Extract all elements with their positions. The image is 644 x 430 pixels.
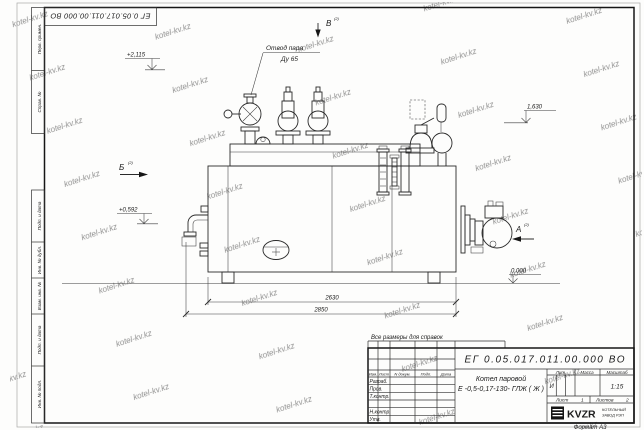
stamp-inv-podl: Инв. № подл. — [37, 380, 42, 409]
org-line1: КОТЕЛЬНЫЙ — [602, 408, 626, 412]
view-label-b: Б — [119, 163, 124, 172]
titleblock-designation: ЕГ 0.05.017.011.00.000 ВО — [465, 355, 625, 366]
masshtab-value: 1:15 — [611, 384, 624, 391]
row-tkontr: Т.контр. — [370, 394, 390, 400]
view-ref-b: (2) — [128, 160, 134, 165]
reference-note: Все размеры для справок — [371, 335, 444, 341]
dim-text-2630: 2630 — [324, 296, 339, 302]
svg-text:+0,592: +0,592 — [119, 208, 138, 214]
stamp-podp-data-2: Подп. и дата — [37, 325, 42, 354]
org-line2: ЗАВОД РЭП — [602, 414, 624, 418]
col-list: Лист — [378, 372, 390, 377]
dim-text-2850: 2850 — [313, 308, 328, 314]
doc-name-line2: Е -0,5-0,17-130- ГЛЖ ( Ж ) — [458, 386, 544, 393]
row-nkontr: Н.контр. — [370, 410, 391, 416]
col-podp: Подп. — [421, 372, 432, 377]
sheets-value: 2 — [625, 397, 629, 403]
steam-note-line2: Ду 65 — [280, 56, 298, 63]
view-label-a: А — [515, 225, 521, 234]
lit-label: Лит. — [555, 370, 567, 375]
svg-text:1,630: 1,630 — [527, 105, 543, 111]
format-label: Формат А3 — [574, 425, 607, 430]
stamp-sprav-no: Справ. № — [37, 92, 42, 113]
row-utv: Утв. — [370, 417, 381, 423]
steam-note-line1: Отвод пара — [266, 44, 304, 52]
stamp-vzam-inv: Взам. инв. № — [37, 282, 42, 310]
col-ndokum: N докум. — [394, 372, 410, 377]
svg-text:0,000: 0,000 — [511, 269, 527, 275]
stamp-inv-dubl: Инв. № дубл. — [37, 246, 42, 274]
view-ref-v: (2) — [334, 16, 340, 21]
row-prov: Пров. — [370, 387, 383, 393]
drawing-sheet: kotel-kv.kz ЕГ 0.05.017.011.00.000 ВО Пе… — [0, 0, 644, 430]
svg-text:+2,115: +2,115 — [127, 53, 146, 59]
top-designation-text: ЕГ 0.05.017.011.00.000 ВО — [50, 12, 150, 21]
sheet-label: Лист — [555, 397, 568, 403]
massa-label: Масса — [580, 370, 594, 375]
col-izm: Изм. — [369, 372, 378, 377]
view-ref-a: (2) — [524, 222, 530, 227]
drawing-sheet-page: kotel-kv.kz ЕГ 0.05.017.011.00.000 ВО Пе… — [0, 0, 644, 430]
stamp-podp-data-1: Подп. и дата — [37, 201, 42, 230]
view-label-v: В — [326, 19, 332, 28]
masshtab-label: Масштаб — [606, 370, 627, 375]
logo-text: KVZR — [567, 409, 596, 421]
lit-value: И — [549, 384, 554, 390]
doc-name-line1: Котел паровой — [476, 375, 526, 383]
sheet-value: 1 — [581, 397, 584, 403]
sheets-label: Листов — [595, 397, 614, 403]
stamp-perv-primen: Перв. примен. — [37, 24, 42, 55]
row-razrab: Разраб. — [370, 379, 388, 385]
col-data: Дата — [440, 372, 452, 377]
